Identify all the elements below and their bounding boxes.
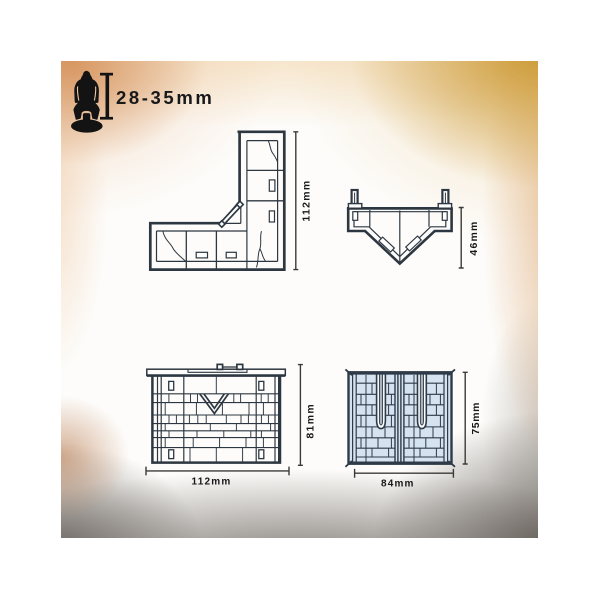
svg-text:112mm: 112mm [192,477,232,488]
svg-text:46mm: 46mm [468,220,480,255]
svg-text:75mm: 75mm [470,402,482,435]
svg-text:81mm: 81mm [305,403,317,439]
svg-text:84mm: 84mm [381,479,415,490]
svg-text:28-35mm: 28-35mm [116,87,214,108]
svg-text:112mm: 112mm [301,179,313,221]
